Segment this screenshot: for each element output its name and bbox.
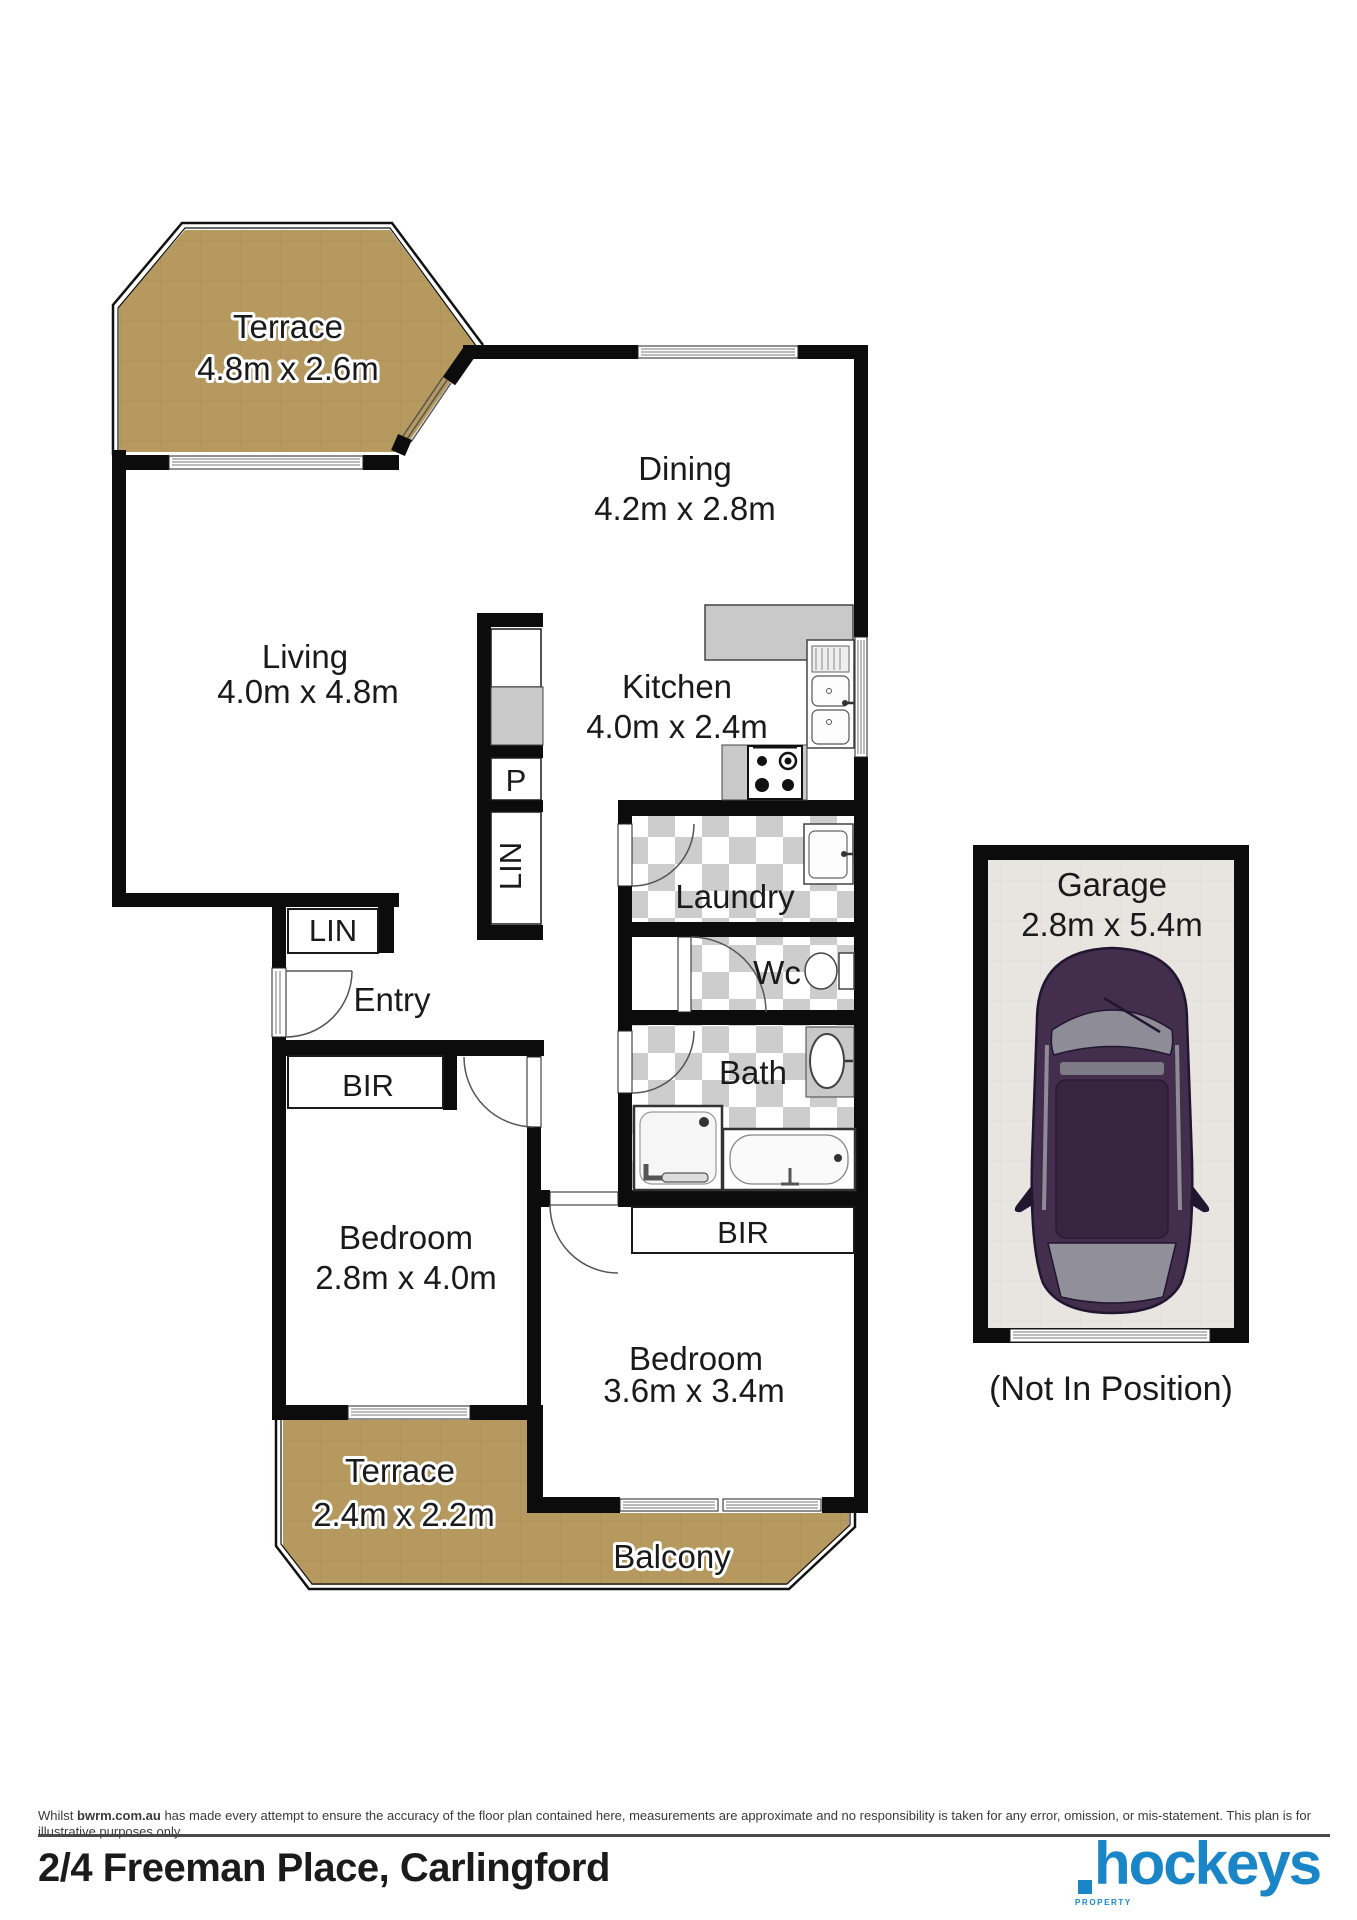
logo-dot-icon — [1078, 1880, 1092, 1894]
disclaimer-bold: bwrm.com.au — [77, 1808, 161, 1823]
logo-wordmark: hockeys — [1094, 1834, 1320, 1894]
kitchen-label: Kitchen — [622, 668, 732, 705]
basin-icon — [806, 1027, 854, 1097]
toilet-icon — [805, 953, 854, 989]
floor-plan-page: Terrace 4.8m x 2.6m Dining 4.2m x 2.8m L… — [0, 0, 1357, 1920]
terrace1-dims: 4.8m x 2.6m — [197, 350, 379, 387]
laundry-label: Laundry — [675, 878, 795, 915]
entry-door-arc — [286, 971, 352, 1037]
terrace2-label: Terrace — [345, 1452, 455, 1489]
car-icon — [1015, 948, 1209, 1313]
linen-entry-label: LIN — [309, 913, 357, 948]
kitchen-dims: 4.0m x 2.4m — [586, 708, 768, 745]
floor-plan-svg: Terrace 4.8m x 2.6m Dining 4.2m x 2.8m L… — [0, 0, 1357, 1760]
bir1-label: BIR — [342, 1068, 394, 1103]
linen-hall-label: LIN — [493, 842, 528, 890]
garage-note: (Not In Position) — [989, 1370, 1233, 1408]
bedroom2-dims: 3.6m x 3.4m — [603, 1372, 785, 1409]
bathtub-icon — [723, 1129, 855, 1190]
logo-property-label: PROPERTY — [1075, 1898, 1132, 1907]
garage-dims: 2.8m x 5.4m — [1021, 906, 1203, 943]
bir2-label: BIR — [717, 1215, 769, 1250]
wc-label: Wc — [753, 954, 801, 991]
bedroom2-door-arc — [550, 1205, 618, 1273]
hockeys-logo: hockeys PROPERTY — [1072, 1838, 1352, 1914]
bath-label: Bath — [719, 1054, 787, 1091]
dining-dims: 4.2m x 2.8m — [594, 490, 776, 527]
living-label: Living — [262, 638, 348, 675]
bedroom1-door-arc — [464, 1057, 534, 1127]
living-dims: 4.0m x 4.8m — [217, 673, 399, 710]
balcony-label: Balcony — [613, 1538, 731, 1575]
shower-icon — [634, 1106, 722, 1190]
bedroom1-label: Bedroom — [339, 1219, 473, 1256]
column-shelf-box — [491, 629, 541, 687]
laundry-tub-icon — [804, 824, 853, 884]
bedroom1-dims: 2.8m x 4.0m — [315, 1259, 497, 1296]
entry-label: Entry — [353, 981, 431, 1018]
dining-label: Dining — [638, 450, 732, 487]
fridge-space — [491, 687, 543, 745]
pantry-label: P — [506, 763, 527, 798]
kitchen-sink-icon — [807, 640, 854, 748]
stove-icon — [722, 745, 807, 800]
address-title: 2/4 Freeman Place, Carlingford — [38, 1846, 610, 1891]
terrace2-dims: 2.4m x 2.2m — [313, 1496, 495, 1533]
garage-label: Garage — [1057, 866, 1167, 903]
terrace1-label: Terrace — [233, 308, 343, 345]
disclaimer-prefix: Whilst — [38, 1808, 73, 1823]
